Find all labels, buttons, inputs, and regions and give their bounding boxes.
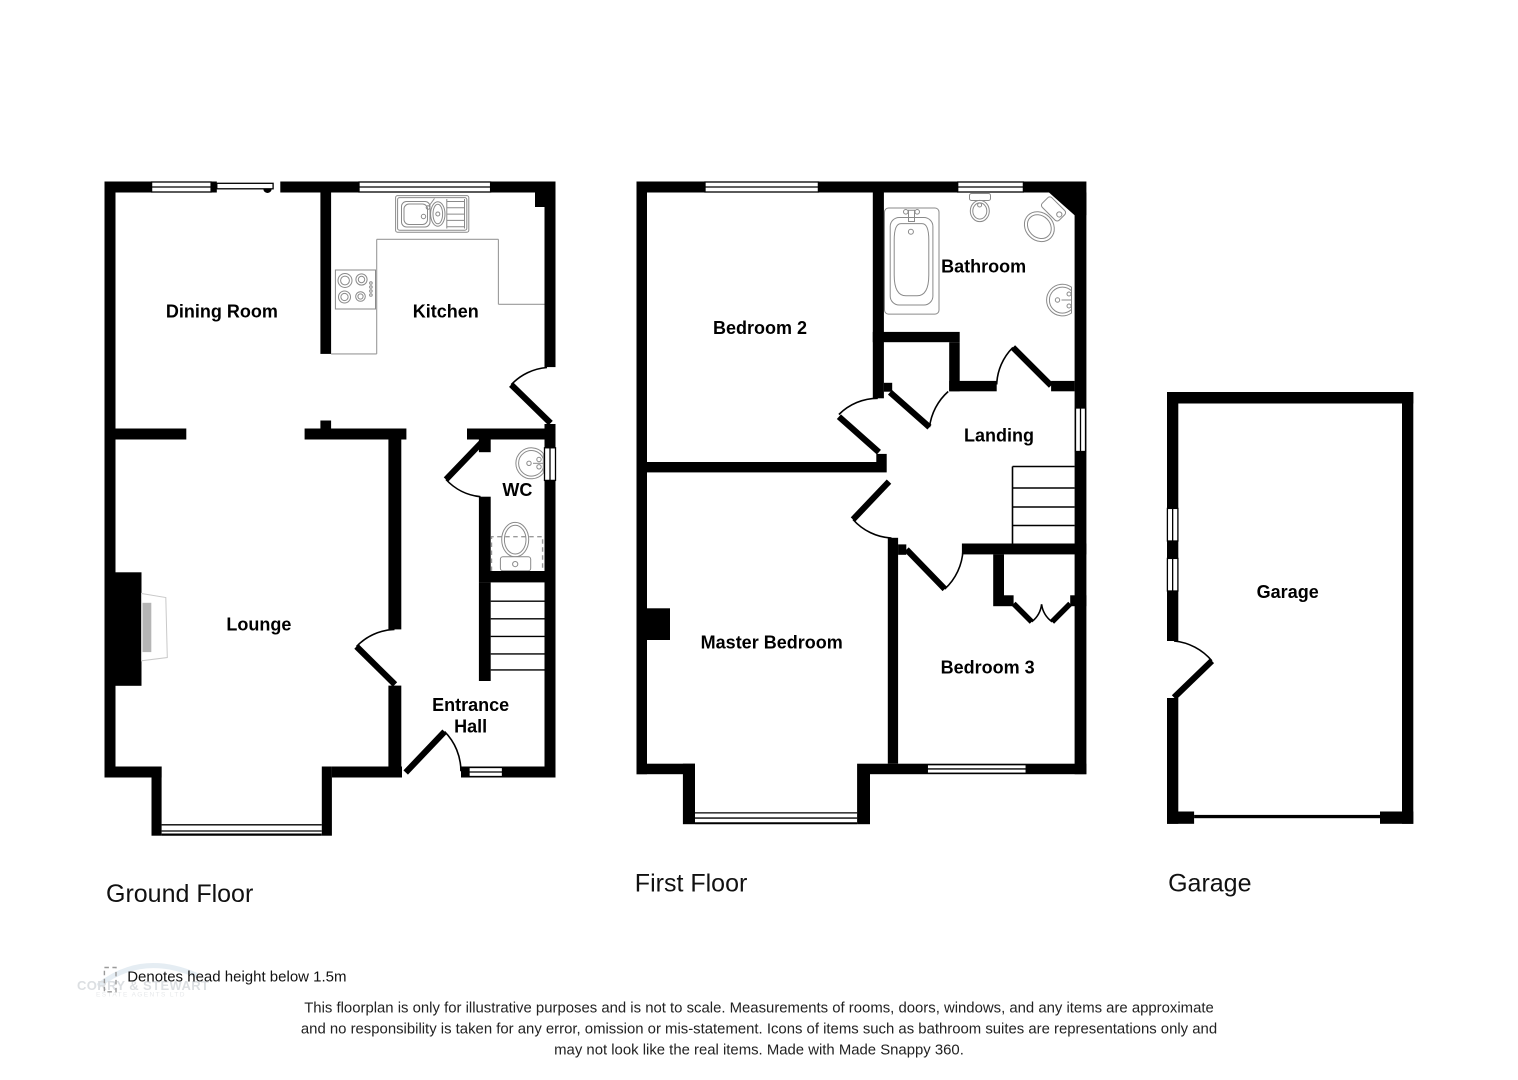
svg-text:Entrance: Entrance [432, 695, 509, 715]
svg-text:Hall: Hall [454, 717, 487, 737]
svg-text:Garage: Garage [1168, 870, 1251, 898]
svg-text:First Floor: First Floor [635, 870, 748, 898]
svg-text:Ground Floor: Ground Floor [106, 880, 253, 908]
svg-text:Bedroom 2: Bedroom 2 [713, 318, 807, 338]
svg-text:Kitchen: Kitchen [413, 302, 479, 322]
svg-text:Master Bedroom: Master Bedroom [701, 633, 843, 653]
svg-text:Dining Room: Dining Room [166, 302, 278, 322]
svg-text:ESTATE AGENTS LTD: ESTATE AGENTS LTD [96, 992, 186, 999]
svg-text:and no responsibility is taken: and no responsibility is taken for any e… [301, 1022, 1217, 1038]
svg-text:may not look like the real ite: may not look like the real items. Made w… [554, 1043, 964, 1059]
svg-text:This floorplan is only for ill: This floorplan is only for illustrative … [304, 1000, 1214, 1016]
svg-text:Bedroom 3: Bedroom 3 [941, 658, 1035, 678]
svg-text:WC: WC [502, 480, 532, 500]
svg-text:Landing: Landing [964, 426, 1034, 446]
svg-text:Bathroom: Bathroom [941, 257, 1026, 277]
svg-text:Garage: Garage [1257, 582, 1319, 602]
svg-text:Denotes head height below 1.5m: Denotes head height below 1.5m [127, 968, 346, 985]
svg-text:Lounge: Lounge [226, 615, 291, 635]
